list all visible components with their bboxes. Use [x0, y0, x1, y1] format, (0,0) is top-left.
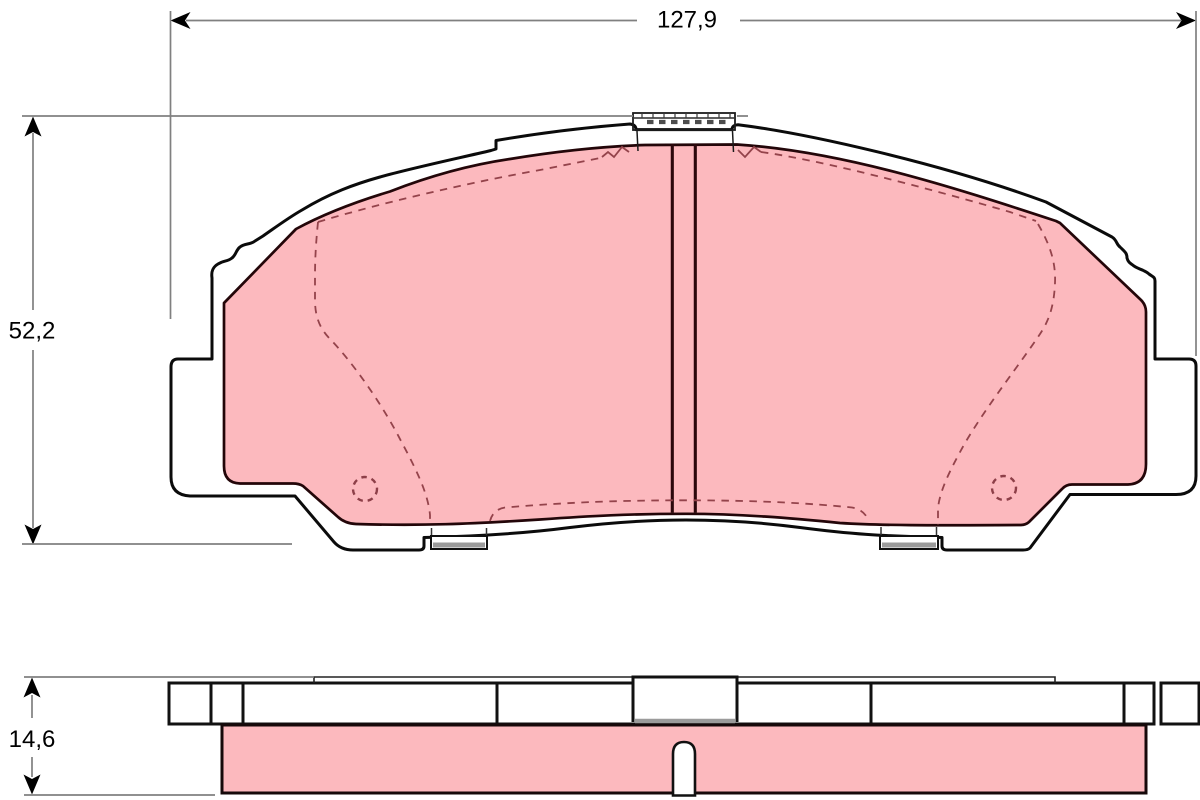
svg-text:52,2: 52,2	[9, 318, 56, 345]
svg-text:14,6: 14,6	[9, 726, 56, 753]
svg-text:127,9: 127,9	[657, 7, 717, 34]
